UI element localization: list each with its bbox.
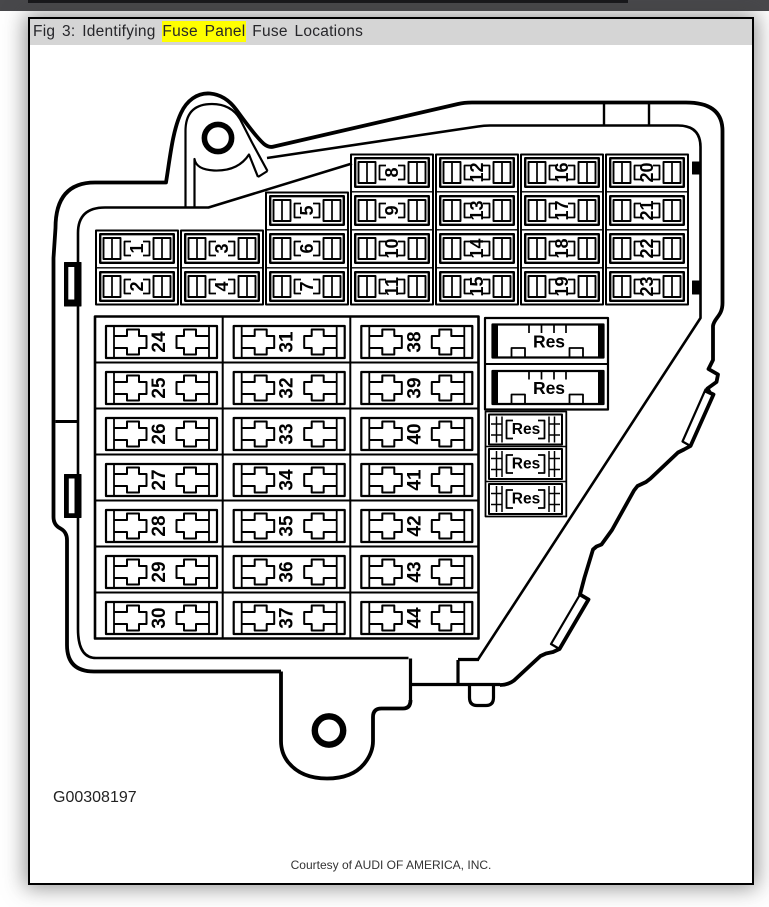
svg-text:21: 21 xyxy=(637,200,657,220)
svg-text:25: 25 xyxy=(149,377,170,399)
svg-text:14: 14 xyxy=(467,238,487,258)
svg-text:40: 40 xyxy=(404,423,425,444)
svg-text:10: 10 xyxy=(382,238,402,258)
svg-text:43: 43 xyxy=(404,561,425,582)
svg-text:5: 5 xyxy=(297,205,317,215)
svg-text:24: 24 xyxy=(149,331,170,353)
svg-text:32: 32 xyxy=(277,377,298,398)
svg-text:12: 12 xyxy=(467,162,487,182)
svg-text:1: 1 xyxy=(127,243,147,253)
svg-text:11: 11 xyxy=(382,277,402,296)
svg-text:7: 7 xyxy=(297,281,317,291)
svg-text:38: 38 xyxy=(404,331,425,352)
svg-text:28: 28 xyxy=(149,515,170,536)
svg-text:29: 29 xyxy=(149,561,170,582)
svg-text:19: 19 xyxy=(552,276,572,296)
svg-text:15: 15 xyxy=(467,276,487,296)
svg-text:13: 13 xyxy=(467,200,487,220)
svg-text:22: 22 xyxy=(637,238,657,258)
svg-text:23: 23 xyxy=(637,276,657,296)
svg-text:44: 44 xyxy=(404,607,425,629)
svg-text:18: 18 xyxy=(552,238,572,258)
svg-text:9: 9 xyxy=(382,205,402,215)
svg-text:41: 41 xyxy=(404,469,425,491)
svg-text:Res: Res xyxy=(533,332,565,352)
svg-text:27: 27 xyxy=(149,469,170,490)
svg-text:36: 36 xyxy=(277,561,298,582)
svg-text:42: 42 xyxy=(404,515,425,536)
svg-text:8: 8 xyxy=(382,167,402,177)
svg-text:31: 31 xyxy=(277,331,298,353)
svg-text:4: 4 xyxy=(212,281,232,291)
svg-text:17: 17 xyxy=(552,200,572,220)
svg-text:39: 39 xyxy=(404,377,425,398)
svg-text:30: 30 xyxy=(149,607,170,628)
svg-text:Res: Res xyxy=(512,421,540,438)
svg-text:37: 37 xyxy=(277,607,298,628)
svg-text:2: 2 xyxy=(127,281,147,291)
svg-text:Res: Res xyxy=(533,378,565,398)
svg-text:34: 34 xyxy=(277,469,298,491)
svg-text:6: 6 xyxy=(297,243,317,253)
svg-text:Res: Res xyxy=(512,491,540,508)
svg-text:16: 16 xyxy=(552,162,572,182)
svg-text:3: 3 xyxy=(212,243,232,253)
svg-text:35: 35 xyxy=(277,515,298,537)
svg-text:33: 33 xyxy=(277,423,298,444)
svg-text:Res: Res xyxy=(512,456,540,473)
svg-text:20: 20 xyxy=(637,162,657,182)
svg-text:26: 26 xyxy=(149,423,170,444)
